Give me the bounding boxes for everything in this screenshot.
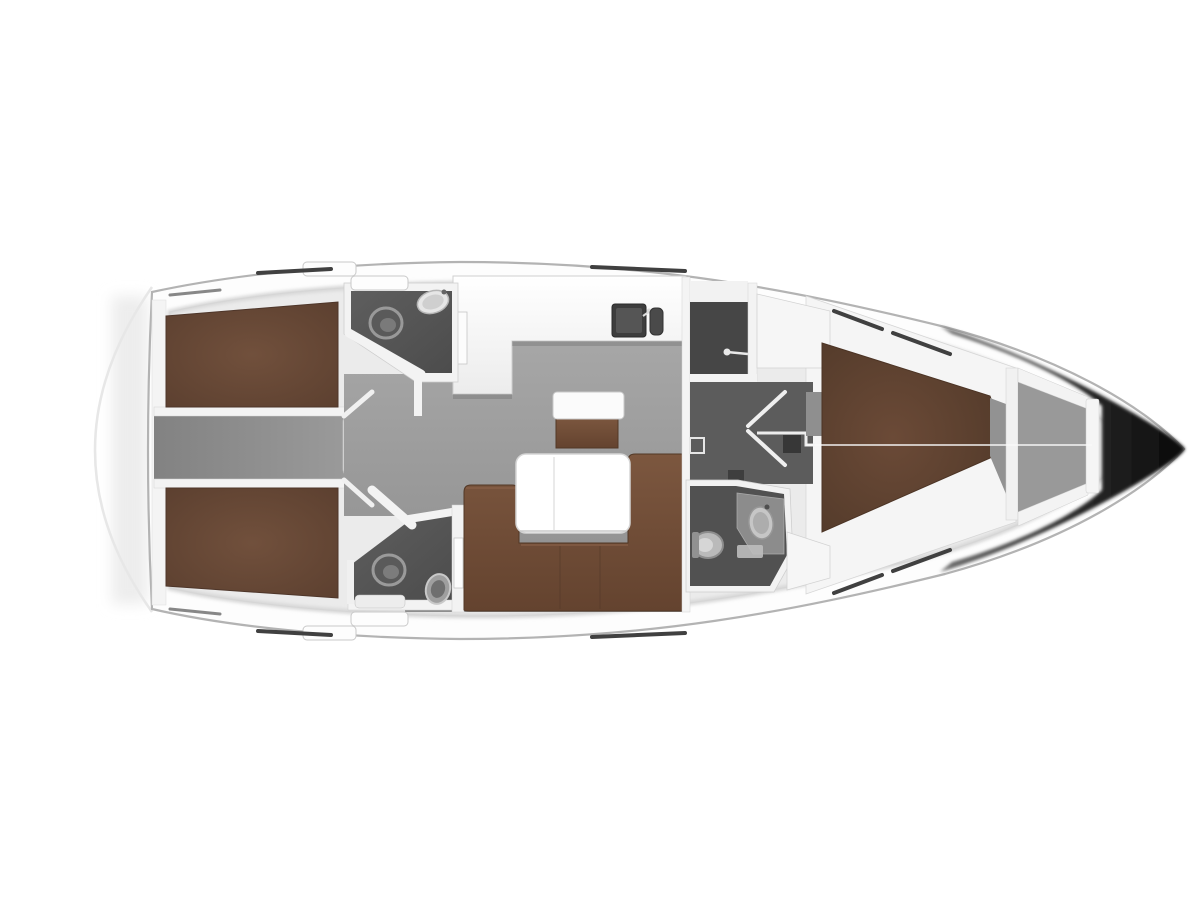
- stern-shadow-halo: [112, 296, 148, 604]
- floor-plan-svg: [0, 0, 1200, 900]
- faucet-icon: [765, 505, 770, 510]
- door-step: [783, 435, 801, 453]
- head-left-wall: [347, 560, 354, 604]
- bow-end-wall: [1086, 399, 1099, 493]
- deck-hatch: [351, 276, 408, 290]
- galley-second-sink: [650, 308, 663, 335]
- aft-berth-port: [166, 302, 338, 407]
- compartment-wall: [690, 374, 757, 382]
- toilet-tank: [692, 532, 699, 558]
- island-seat-base: [556, 417, 618, 448]
- counter-shadow: [453, 394, 512, 399]
- forward-bulkhead: [1006, 368, 1018, 520]
- toilet-bowl-icon: [380, 318, 396, 332]
- galley-sink-basin: [616, 308, 642, 333]
- shower-control: [737, 545, 763, 558]
- toilet-bowl-icon: [383, 565, 399, 579]
- compartment-wall: [748, 283, 757, 381]
- wet-locker: [690, 302, 748, 374]
- corridor-floor: [154, 416, 346, 479]
- aft-berth-starboard: [166, 488, 338, 598]
- locker-top: [690, 281, 748, 302]
- mid-compartments: [690, 281, 830, 484]
- faucet-icon: [442, 290, 447, 295]
- counter-shadow: [512, 341, 686, 346]
- locker-door: [454, 538, 463, 588]
- island-seat-top: [553, 392, 624, 419]
- shower-tray: [355, 595, 405, 608]
- corridor-wall-port: [154, 407, 346, 416]
- yacht-floor-plan-image: [0, 0, 1200, 900]
- deck-hatch: [351, 612, 408, 626]
- corridor-wall-starboard: [154, 479, 346, 488]
- saloon-table: [516, 454, 630, 533]
- toilet-bowl-icon: [697, 538, 713, 552]
- cabin-entry-floor: [806, 392, 824, 436]
- aft-section: [152, 300, 346, 605]
- head-side-wall: [414, 372, 422, 416]
